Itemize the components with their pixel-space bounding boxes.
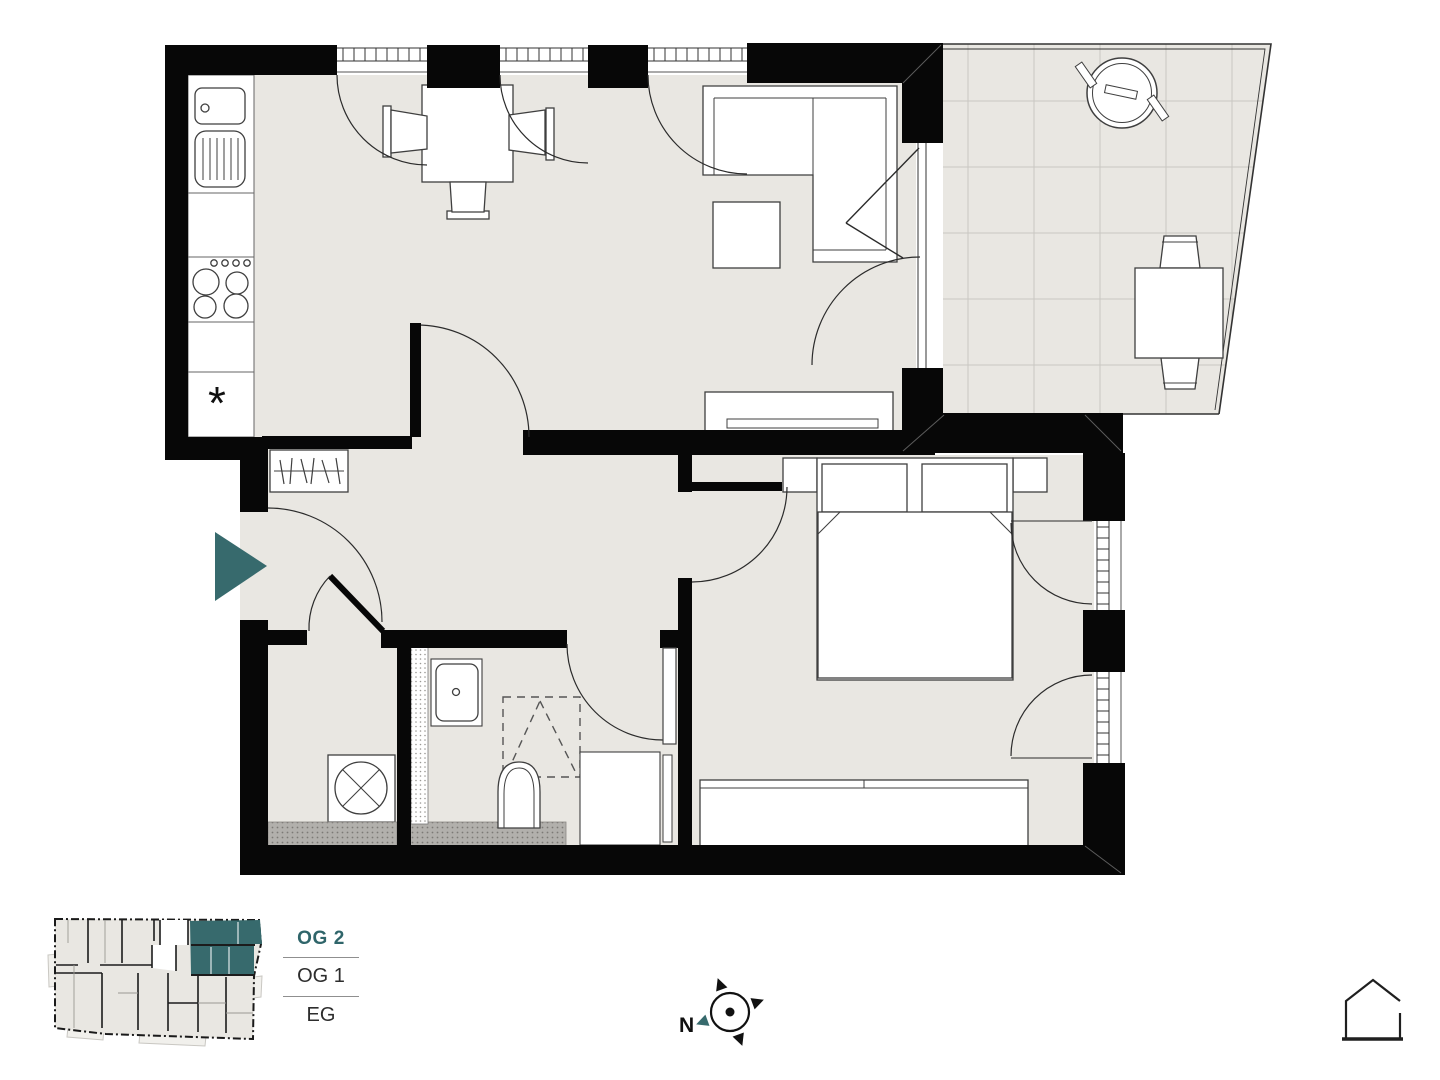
chair-left (383, 106, 391, 157)
balcony-door-glass (916, 143, 928, 368)
washbasin (431, 659, 482, 726)
wall-top-mullion-2 (588, 45, 648, 88)
wall-top-mullion-1 (427, 45, 500, 88)
minimap-highlighted-unit[interactable] (190, 920, 262, 975)
wall-storage-top (268, 630, 307, 645)
home-icon[interactable] (1342, 980, 1403, 1039)
sideboard (705, 392, 893, 436)
appliance-asterisk: * (208, 377, 226, 429)
wall-hall-left-lower (240, 620, 268, 875)
wall-right-1 (1083, 453, 1125, 521)
wall-right-3 (1083, 763, 1125, 875)
window-top-3 (648, 45, 747, 75)
window-top-2 (500, 45, 588, 75)
window-top-1 (337, 45, 427, 75)
storage-floor-strip (268, 822, 397, 848)
window-bedroom-a (1094, 521, 1125, 610)
wall-left (165, 45, 188, 460)
floor-selector-item-eg[interactable]: EG (283, 997, 359, 1035)
compass-rose-icon: N (679, 966, 776, 1058)
wall-top-1 (165, 45, 337, 75)
wall-terrace-bottom (930, 413, 1123, 453)
floorplan-canvas: * (0, 0, 1440, 1080)
wall-right-2 (1083, 610, 1125, 672)
washing-machine (328, 755, 395, 822)
pillow-right (922, 464, 1007, 512)
bedroom-door-leaf (690, 482, 782, 491)
wall-balcony-jamb-top (902, 83, 943, 143)
wall-bath-top-right (660, 630, 678, 648)
compass-north-pointer (694, 1015, 709, 1030)
hall-living-door-leaf (410, 323, 421, 437)
floor-selector: OG 2 OG 1 EG (283, 928, 359, 1035)
wall-bedroom-left-bottom (678, 578, 692, 875)
nightstand-left (783, 458, 817, 492)
wall-top-2 (747, 43, 943, 83)
mattress (818, 512, 1012, 678)
wall-living-bedroom (523, 430, 935, 455)
floor-selector-current[interactable]: OG 2 (283, 928, 359, 957)
wall-hall-left-upper (240, 440, 268, 512)
floor-selector-item-og1[interactable]: OG 1 (283, 958, 359, 996)
toilet (498, 762, 540, 828)
nightstand-right (1013, 458, 1047, 492)
floorplan-page: * (0, 0, 1440, 1080)
bathroom-door-leaf (663, 648, 676, 744)
bedroom-wardrobe (700, 780, 1028, 847)
hall-wardrobe (270, 450, 348, 492)
kitchen-counter: * (188, 75, 254, 437)
installation-wall (411, 646, 428, 824)
faucet-icon (201, 104, 209, 112)
minimap-building-overview[interactable] (48, 919, 262, 1046)
terrace-chair-bottom (1161, 358, 1199, 389)
wall-hall-living (262, 436, 412, 449)
wall-storage-bath (397, 630, 411, 875)
bath-floor-strip (410, 822, 566, 848)
terrace-chair-top (1160, 236, 1200, 268)
bath-cabinet (580, 752, 672, 845)
coffee-table (713, 202, 780, 268)
compass-north-label: N (679, 1014, 694, 1037)
window-bedroom-b (1094, 672, 1125, 763)
chair-right (546, 108, 554, 160)
wall-bedroom-left-top (678, 455, 692, 492)
bed (783, 458, 1047, 680)
pillow-left (822, 464, 907, 512)
terrace-table (1135, 268, 1223, 358)
